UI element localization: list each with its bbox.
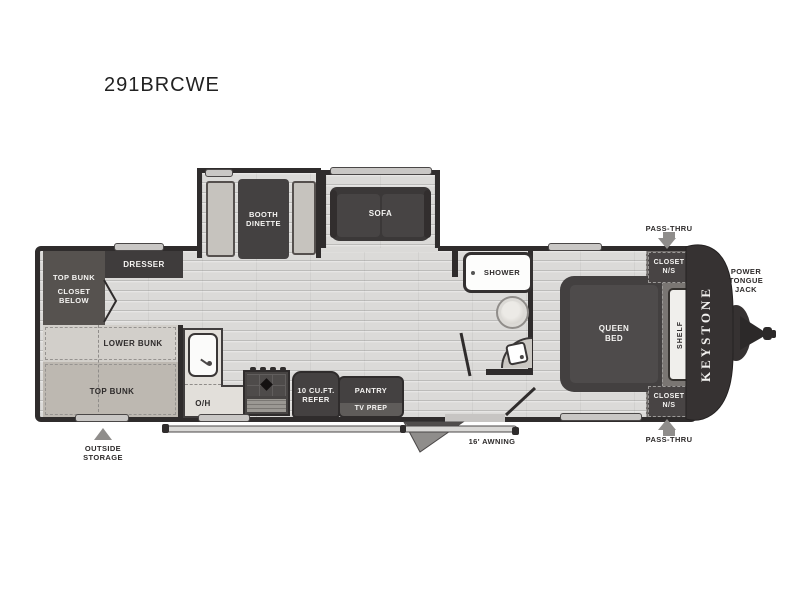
refer-label: 10 CU.FT. REFER xyxy=(297,386,334,404)
window xyxy=(548,243,602,251)
dinette-bench-left xyxy=(206,181,235,257)
tv-prep: TV PREP xyxy=(340,403,402,416)
awning-bar xyxy=(165,426,517,432)
pass-thru-bottom-label: PASS-THRU xyxy=(646,435,693,444)
stove xyxy=(243,370,290,416)
awning-label: 16' AWNING xyxy=(469,437,516,446)
sofa-label-wrap: SOFA xyxy=(330,187,431,241)
floorplan-canvas: 291BRCWE BOOTH DINETTE SOFA TOP BUNK CLO… xyxy=(0,0,800,600)
lower-bunk-label-wrap: LOWER BUNK xyxy=(88,338,178,350)
stove-knob-icon xyxy=(270,367,276,371)
dinette-bench-right xyxy=(292,181,316,255)
brand-wrap: KEYSTONE xyxy=(694,278,718,390)
bath-faucet-icon xyxy=(519,355,524,360)
closet-below-label: CLOSET BELOW xyxy=(58,287,91,305)
overhead-label: O/H xyxy=(195,399,210,409)
kitchen-sink xyxy=(188,333,218,377)
outside-storage-wrap: OUTSIDE STORAGE xyxy=(74,443,132,463)
shower-label: SHOWER xyxy=(484,268,520,277)
power-tongue-jack-label: POWER TONGUE JACK xyxy=(729,267,763,294)
booth-dinette-label: BOOTH DINETTE xyxy=(246,210,281,228)
stove-knob-icon xyxy=(250,367,256,371)
hitch-tip xyxy=(763,327,772,340)
window xyxy=(114,243,164,251)
pantry-label: PANTRY xyxy=(355,386,387,395)
pass-thru-bottom-wrap: PASS-THRU xyxy=(640,434,698,444)
oh-label-wrap: O/H xyxy=(185,398,221,410)
entry-step xyxy=(404,422,463,452)
slideout-dinette: BOOTH DINETTE xyxy=(197,168,321,258)
awning-mid-cap xyxy=(400,425,406,433)
window xyxy=(330,167,432,175)
queen-bed-label: QUEEN BED xyxy=(599,324,629,343)
awning-end-cap xyxy=(162,424,169,433)
pass-thru-top-wrap: PASS-THRU xyxy=(640,223,698,233)
lower-bunk-label: LOWER BUNK xyxy=(103,339,162,349)
burner-icon xyxy=(260,378,273,391)
top-bunk-over-closet-label: TOP BUNK xyxy=(53,273,95,282)
window xyxy=(560,413,642,421)
counter-oh-divider xyxy=(185,384,221,385)
pass-thru-top-label: PASS-THRU xyxy=(646,224,693,233)
stove-vent xyxy=(247,399,286,412)
awning-label-wrap: 16' AWNING xyxy=(458,436,526,446)
refrigerator: 10 CU.FT. REFER xyxy=(292,371,340,418)
bath-sink xyxy=(505,341,529,366)
shower-head-icon xyxy=(471,271,475,275)
shower: SHOWER xyxy=(463,252,533,293)
bath-wall-bottom xyxy=(486,369,533,375)
queen-bed-mattress: QUEEN BED xyxy=(570,285,658,383)
entry-door-opening xyxy=(445,414,505,422)
tv-prep-label: TV PREP xyxy=(355,405,388,413)
top-bunk-label: TOP BUNK xyxy=(90,387,135,397)
window xyxy=(75,414,129,422)
power-tongue-jack-wrap: POWER TONGUE JACK xyxy=(718,264,774,296)
hitch-tip-end xyxy=(771,330,776,338)
stove-knob-icon xyxy=(280,367,286,371)
window xyxy=(205,169,233,177)
model-title: 291BRCWE xyxy=(104,74,220,97)
outside-storage-arrow-icon xyxy=(94,428,112,440)
sofa-label: SOFA xyxy=(369,209,392,219)
stove-knob-icon xyxy=(260,367,266,371)
brand-label: KEYSTONE xyxy=(698,286,714,382)
bath-wall-stub xyxy=(452,249,458,277)
pantry: PANTRY TV PREP xyxy=(338,376,404,418)
dresser: DRESSER xyxy=(105,251,183,278)
dinette-table: BOOTH DINETTE xyxy=(238,179,289,259)
window xyxy=(198,414,250,422)
slideout-sofa: SOFA xyxy=(321,170,440,248)
toilet xyxy=(496,296,529,329)
faucet-arm-icon xyxy=(200,359,209,366)
outside-storage-label: OUTSIDE STORAGE xyxy=(83,444,123,462)
top-bunk-closet: TOP BUNK CLOSET BELOW xyxy=(43,251,105,327)
queen-bed: QUEEN BED xyxy=(560,276,668,392)
pantry-label-wrap: PANTRY xyxy=(340,378,402,403)
dresser-label: DRESSER xyxy=(123,260,164,270)
awning-end-cap xyxy=(512,427,519,435)
entry-step-shadow xyxy=(404,422,463,432)
top-bunk-label-wrap: TOP BUNK xyxy=(62,386,162,398)
sofa: SOFA xyxy=(330,187,431,241)
stove-burners xyxy=(247,374,286,396)
